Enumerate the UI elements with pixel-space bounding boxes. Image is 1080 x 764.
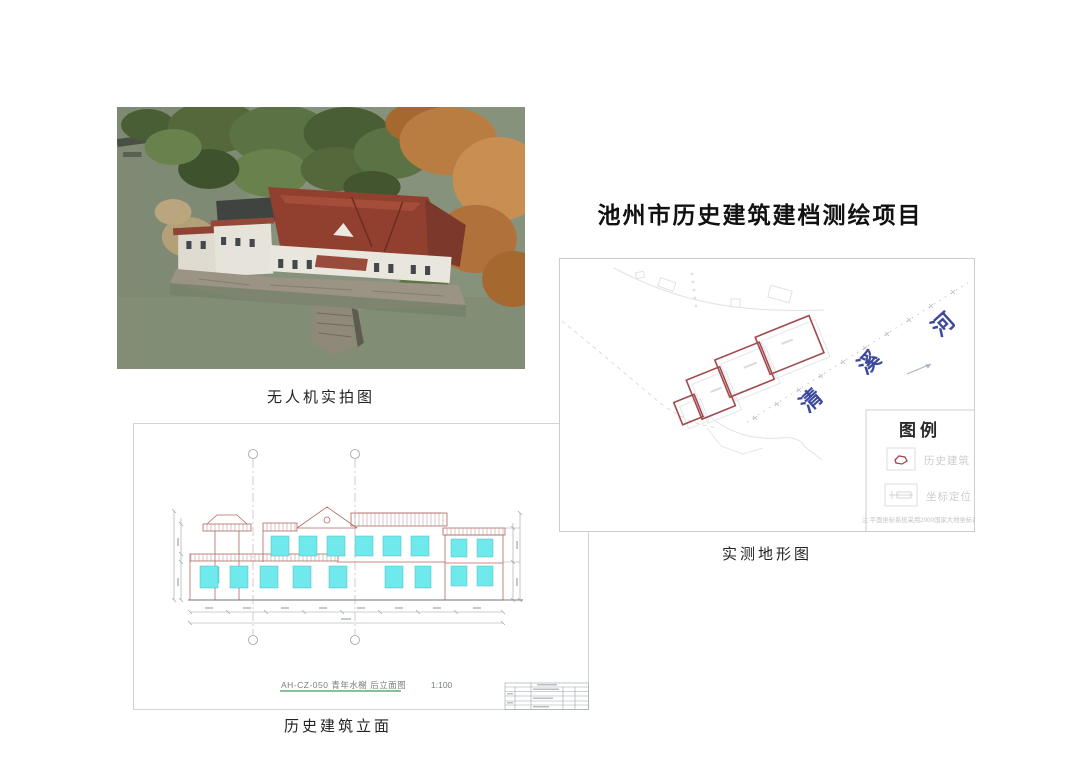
legend-symbol-historic-building [887, 448, 915, 470]
drone-photo [117, 107, 525, 369]
document-page: 无人机实拍图 池州市历史建筑建档测绘项目 [0, 0, 1080, 764]
topographic-map: 清 溪 河 图例 历史建筑 坐标定位 注:平面坐标系统采用2000国家大地坐标系 [559, 258, 975, 532]
drawing-title: AH-CZ-050 青年水榭 后立面图 [281, 680, 406, 690]
legend-label-coordinate: 坐标定位 [926, 490, 972, 503]
drawing-scale: 1:100 [431, 680, 453, 690]
legend-title: 图例 [899, 420, 941, 440]
elevation-caption: 历史建筑立面 [133, 715, 543, 736]
page-title: 池州市历史建筑建档测绘项目 [590, 196, 930, 230]
map-caption: 实测地形图 [559, 543, 975, 564]
legend-note: 注:平面坐标系统采用2000国家大地坐标系 [862, 515, 975, 524]
map-legend: 图例 历史建筑 坐标定位 注:平面坐标系统采用2000国家大地坐标系 [862, 410, 975, 532]
photo-caption: 无人机实拍图 [117, 386, 525, 407]
elevation-drawing-sheet: AH-CZ-050 青年水榭 后立面图 1:100 [133, 423, 589, 710]
legend-label-historic-building: 历史建筑 [924, 454, 970, 467]
historic-building [173, 187, 466, 283]
